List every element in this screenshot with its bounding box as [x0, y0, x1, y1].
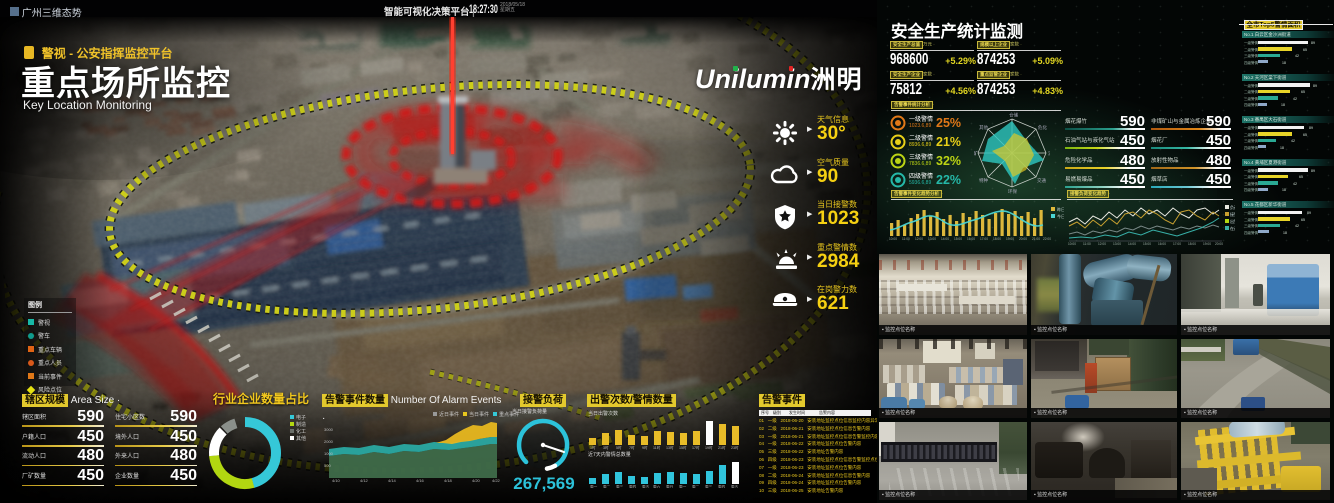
svg-text:昨日: 昨日	[1057, 206, 1064, 212]
svg-text:4/10: 4/10	[332, 478, 341, 482]
svg-text:其他: 其他	[979, 124, 988, 131]
svg-text:4/12: 4/12	[360, 478, 369, 482]
svg-text:18:00: 18:00	[993, 237, 1001, 241]
svg-text:16:00: 16:00	[1158, 242, 1166, 246]
svg-text:23时: 23时	[731, 445, 739, 450]
svg-text:13时: 13时	[666, 445, 674, 450]
svg-text:近7天内警情总数量: 近7天内警情总数量	[588, 451, 631, 458]
svg-text:今日: 今日	[1057, 213, 1064, 219]
svg-text:12:00: 12:00	[915, 237, 923, 241]
svg-text:4/20: 4/20	[472, 478, 481, 482]
svg-text:特种: 特种	[979, 177, 988, 184]
svg-text:18:00: 18:00	[1188, 242, 1196, 246]
svg-text:11:00: 11:00	[1083, 242, 1091, 246]
svg-text:15时: 15时	[679, 445, 687, 450]
svg-text:12:00: 12:00	[1098, 242, 1106, 246]
svg-text:周五: 周五	[731, 484, 739, 488]
svg-text:20:00: 20:00	[1215, 242, 1223, 246]
svg-text:4/16: 4/16	[416, 478, 425, 482]
svg-text:14:00: 14:00	[941, 237, 949, 241]
svg-text:周三: 周三	[616, 484, 624, 488]
svg-text:21时: 21时	[718, 445, 726, 450]
svg-text:4/14: 4/14	[388, 478, 397, 482]
svg-text:16:00: 16:00	[967, 237, 975, 241]
svg-text:22:00: 22:00	[1043, 237, 1051, 241]
svg-text:消防: 消防	[1048, 150, 1050, 157]
svg-text:周一: 周一	[590, 484, 598, 488]
svg-text:13:00: 13:00	[928, 237, 936, 241]
svg-text:15:00: 15:00	[954, 237, 962, 241]
svg-text:1000: 1000	[324, 451, 334, 456]
svg-text:周一: 周一	[679, 484, 687, 488]
svg-text:在途: 在途	[1230, 225, 1235, 231]
svg-text:周五: 周五	[642, 484, 650, 488]
svg-text:周二: 周二	[603, 484, 611, 488]
svg-text:500: 500	[324, 463, 331, 468]
svg-text:4/22: 4/22	[492, 478, 501, 482]
svg-text:1时: 1时	[590, 445, 596, 450]
svg-text:周四: 周四	[629, 484, 637, 488]
svg-text:周二: 周二	[692, 484, 700, 488]
svg-text:周四: 周四	[718, 484, 726, 488]
svg-text:17:00: 17:00	[980, 237, 988, 241]
svg-text:19时: 19时	[705, 445, 713, 450]
svg-text:20:00: 20:00	[1019, 237, 1027, 241]
svg-text:危化: 危化	[1038, 124, 1047, 131]
svg-text:14:00: 14:00	[1128, 242, 1136, 246]
svg-text:9时: 9时	[642, 445, 648, 450]
svg-text:周六: 周六	[653, 484, 661, 488]
svg-text:周三: 周三	[705, 484, 713, 488]
svg-text:3000: 3000	[324, 427, 334, 432]
svg-text:21:00: 21:00	[1032, 237, 1040, 241]
svg-text:5时: 5时	[616, 445, 622, 450]
svg-text:19:00: 19:00	[1006, 237, 1014, 241]
svg-text:接警: 接警	[1230, 211, 1235, 217]
svg-text:10:00: 10:00	[889, 237, 897, 241]
svg-text:19:00: 19:00	[1203, 242, 1211, 246]
svg-text:7时: 7时	[629, 445, 635, 450]
svg-text:2000: 2000	[324, 439, 334, 444]
svg-text:10:00: 10:00	[1068, 242, 1076, 246]
svg-text:17时: 17时	[692, 445, 700, 450]
svg-text:11时: 11时	[653, 445, 661, 450]
svg-text:15:00: 15:00	[1143, 242, 1151, 246]
svg-text:仓储: 仓储	[1009, 112, 1018, 119]
svg-text:3时: 3时	[603, 445, 609, 450]
svg-text:11:00: 11:00	[902, 237, 910, 241]
svg-text:13:00: 13:00	[1113, 242, 1121, 246]
svg-text:工矿: 工矿	[974, 150, 978, 157]
svg-text:交通: 交通	[1037, 177, 1046, 184]
svg-text:17:00: 17:00	[1173, 242, 1181, 246]
svg-text:4/18: 4/18	[444, 478, 453, 482]
svg-text:周日: 周日	[666, 484, 673, 488]
svg-text:出警: 出警	[1230, 218, 1235, 224]
svg-text:负荷: 负荷	[1230, 204, 1235, 210]
